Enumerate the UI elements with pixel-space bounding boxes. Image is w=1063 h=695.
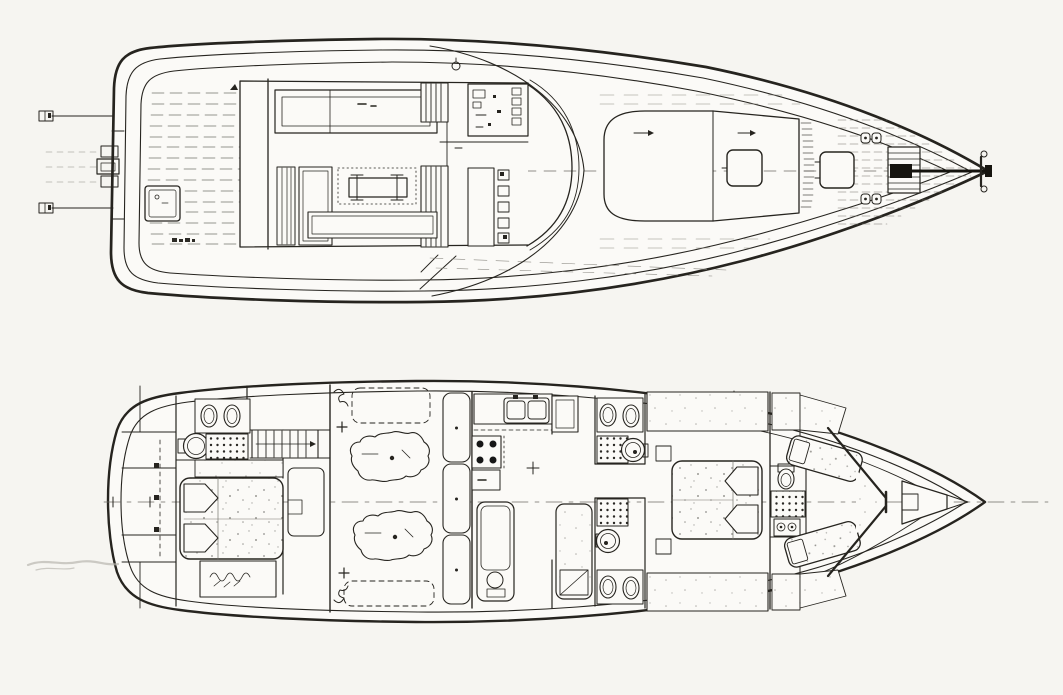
- starboard-engine: [353, 511, 432, 561]
- drawing-canvas: [0, 0, 1063, 695]
- yacht-plan-scan: [0, 0, 1063, 695]
- companionway-steps-fwd: [421, 83, 448, 122]
- midship-double-berth: [672, 461, 762, 539]
- locker-column: [443, 393, 470, 604]
- pencil-smudge: [28, 561, 118, 570]
- single-berth: [556, 504, 592, 599]
- bedside-cabinet: [288, 468, 324, 536]
- saloon-bench: [308, 212, 437, 238]
- lower-head: [477, 502, 514, 601]
- midship-head-port: [597, 398, 648, 463]
- saloon-settee: [275, 90, 437, 133]
- accommodation-plan-view: [28, 381, 1048, 622]
- aft-shower-tray: [206, 434, 248, 459]
- deck-plan-view: [39, 39, 992, 302]
- cabin-top-hatch: [722, 150, 762, 186]
- aft-cabin-dresser: [200, 561, 276, 597]
- helm-console: [468, 84, 528, 136]
- port-engine: [350, 432, 429, 482]
- companionway-stairs: [252, 430, 318, 458]
- foredeck-hatch: [815, 152, 854, 188]
- aft-double-berth: [180, 478, 283, 559]
- galley-stove: [472, 436, 504, 468]
- refrigerator: [552, 396, 578, 432]
- deck-locker-hatch: [145, 186, 180, 221]
